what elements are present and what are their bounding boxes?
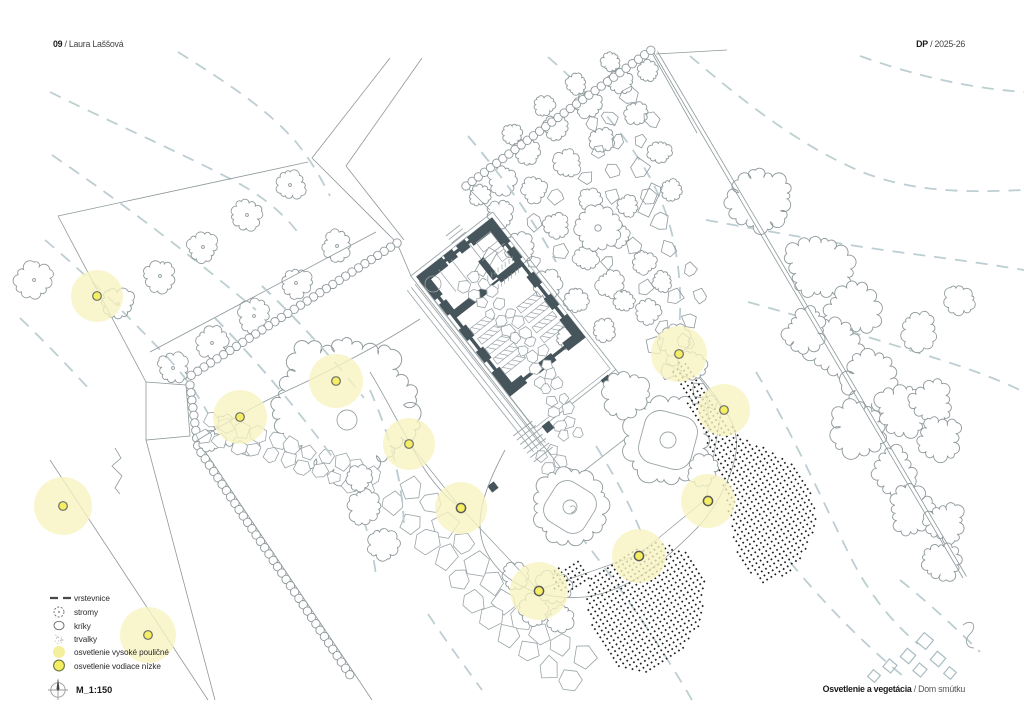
svg-text:trvalky: trvalky bbox=[74, 635, 98, 644]
svg-text:stromy: stromy bbox=[74, 608, 99, 617]
svg-text:vrstevnice: vrstevnice bbox=[74, 594, 110, 603]
svg-text:osvetlenie vysoké pouličné: osvetlenie vysoké pouličné bbox=[74, 648, 169, 657]
svg-text:09 / Laura Laššová: 09 / Laura Laššová bbox=[53, 39, 124, 49]
svg-text:Osvetlenie a vegetácia / Dom s: Osvetlenie a vegetácia / Dom smútku bbox=[823, 684, 966, 694]
svg-text:kríky: kríky bbox=[74, 622, 92, 631]
svg-text:M_1:150: M_1:150 bbox=[76, 685, 112, 695]
svg-text:osvetlenie vodiace nízke: osvetlenie vodiace nízke bbox=[74, 662, 161, 671]
svg-text:DP / 2025-26: DP / 2025-26 bbox=[916, 39, 965, 49]
